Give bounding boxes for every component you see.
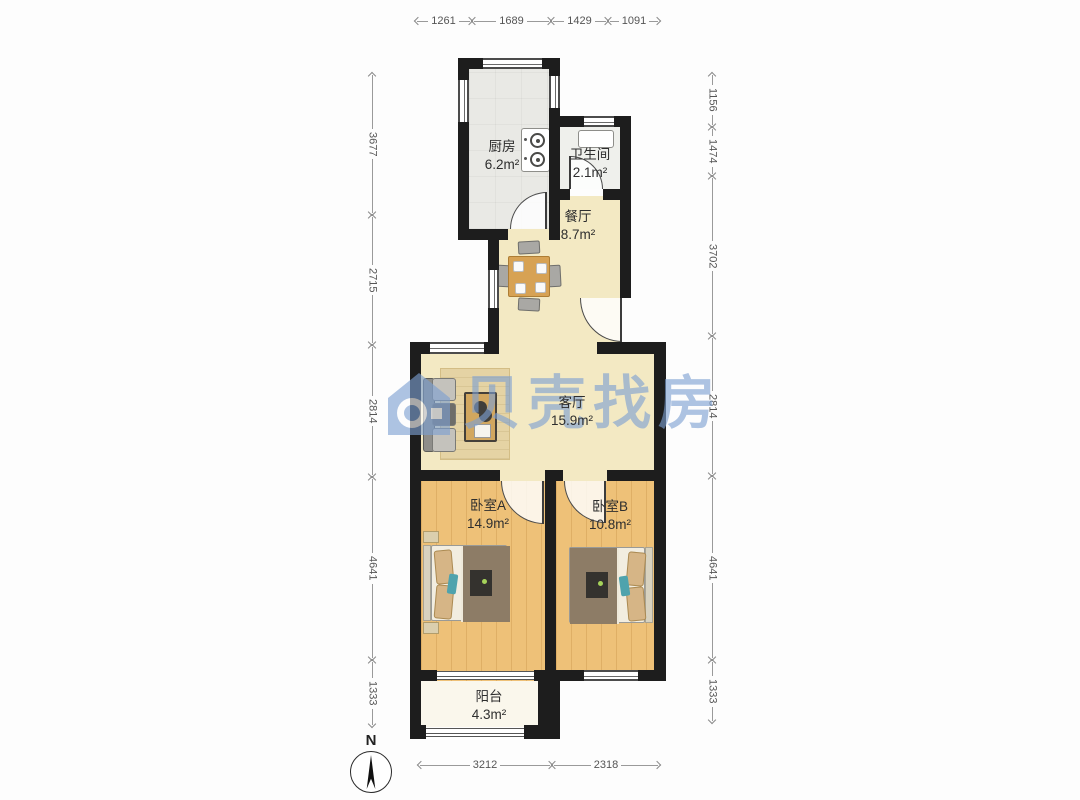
room-area: 15.9m² [551, 412, 593, 430]
bed-a [431, 545, 507, 621]
nightstand [423, 622, 439, 634]
dim-right-1: 1156 [705, 73, 719, 127]
wall-segment [545, 470, 556, 681]
dim-top-3: 1429 [551, 14, 608, 28]
dining-chair [518, 240, 541, 254]
dim-left-3: 2814 [365, 345, 379, 477]
dim-right-2: 1474 [705, 127, 719, 176]
kitchen-left-window [458, 80, 469, 122]
room-area: 4.3m² [472, 706, 507, 724]
dim-top-2: 1689 [472, 14, 551, 28]
wall-segment [607, 470, 666, 481]
coffee-table [464, 392, 497, 442]
room-area: 14.9m² [467, 515, 509, 533]
balcony-glazing [426, 728, 524, 737]
room-name: 客厅 [551, 394, 593, 412]
wall-segment [410, 470, 500, 481]
bathroom-label: 卫生间 2.1m² [570, 146, 611, 181]
wall-segment [549, 189, 570, 200]
room-name: 阳台 [472, 688, 507, 706]
nightstand [423, 531, 439, 543]
dim-bottom-1: 3212 [418, 758, 552, 772]
north-arrow-icon [350, 751, 392, 793]
dining-table [508, 256, 550, 297]
wall-segment [524, 725, 540, 739]
bathroom-window [584, 116, 614, 127]
room-name: 卧室A [467, 497, 509, 515]
wall-segment [654, 342, 666, 681]
kitchen-top-window [483, 58, 542, 69]
dim-top-4: 1091 [608, 14, 660, 28]
sofa-cushion [432, 428, 456, 452]
stove-icon [521, 128, 550, 172]
living-label: 客厅 15.9m² [551, 394, 593, 429]
bedroom-b-label: 卧室B 10.8m² [589, 498, 631, 533]
dim-left-1: 3677 [365, 73, 379, 215]
kitchen-label: 厨房 6.2m² [485, 138, 520, 173]
room-area: 2.1m² [570, 164, 611, 182]
dining-window [488, 270, 499, 308]
dining-label: 餐厅 8.7m² [561, 208, 596, 243]
kitchen-right-window [549, 76, 560, 108]
room-area: 6.2m² [485, 156, 520, 174]
dim-right-3: 3702 [705, 176, 719, 336]
dim-left-2: 2715 [365, 215, 379, 345]
sofa-cushion [432, 378, 456, 401]
sofa-cushion [432, 403, 456, 426]
bedroom-a-door-leaf [542, 481, 544, 524]
balcony-label: 阳台 4.3m² [472, 688, 507, 723]
wall-segment [458, 229, 508, 240]
wall-segment [538, 670, 560, 739]
room-name: 餐厅 [561, 208, 596, 226]
compass-north-label: N [348, 733, 394, 748]
room-area: 8.7m² [561, 226, 596, 244]
wall-segment [410, 670, 437, 681]
dim-left-4: 4641 [365, 477, 379, 660]
dining-chair [518, 297, 541, 311]
wall-segment [620, 116, 631, 298]
wall-segment [410, 725, 426, 739]
floor-plan-canvas: 厨房 6.2m² 卫生间 2.1m² 餐厅 8.7m² 客厅 15.9m² 卧室… [0, 0, 1080, 800]
dim-top-1: 1261 [415, 14, 472, 28]
dim-bottom-2: 2318 [552, 758, 660, 772]
bedroom-a-label: 卧室A 14.9m² [467, 497, 509, 532]
room-name: 卫生间 [570, 146, 611, 164]
room-name: 厨房 [485, 138, 520, 156]
dim-right-5: 4641 [705, 476, 719, 660]
balcony-slider-window [437, 671, 534, 680]
dim-right-6: 1333 [705, 660, 719, 723]
dim-left-5: 1333 [365, 660, 379, 727]
room-name: 卧室B [589, 498, 631, 516]
wall-segment [603, 189, 631, 200]
living-window [430, 342, 484, 354]
kitchen-door-leaf [545, 192, 547, 229]
bed-b-headboard [645, 547, 653, 623]
bed-b [569, 547, 645, 623]
bed-a-headboard [423, 545, 431, 621]
compass: N [348, 733, 394, 793]
bedroom-b-window [584, 670, 638, 681]
dim-right-4: 2814 [705, 336, 719, 476]
entry-door-leaf [620, 298, 622, 342]
room-area: 10.8m² [589, 516, 631, 534]
